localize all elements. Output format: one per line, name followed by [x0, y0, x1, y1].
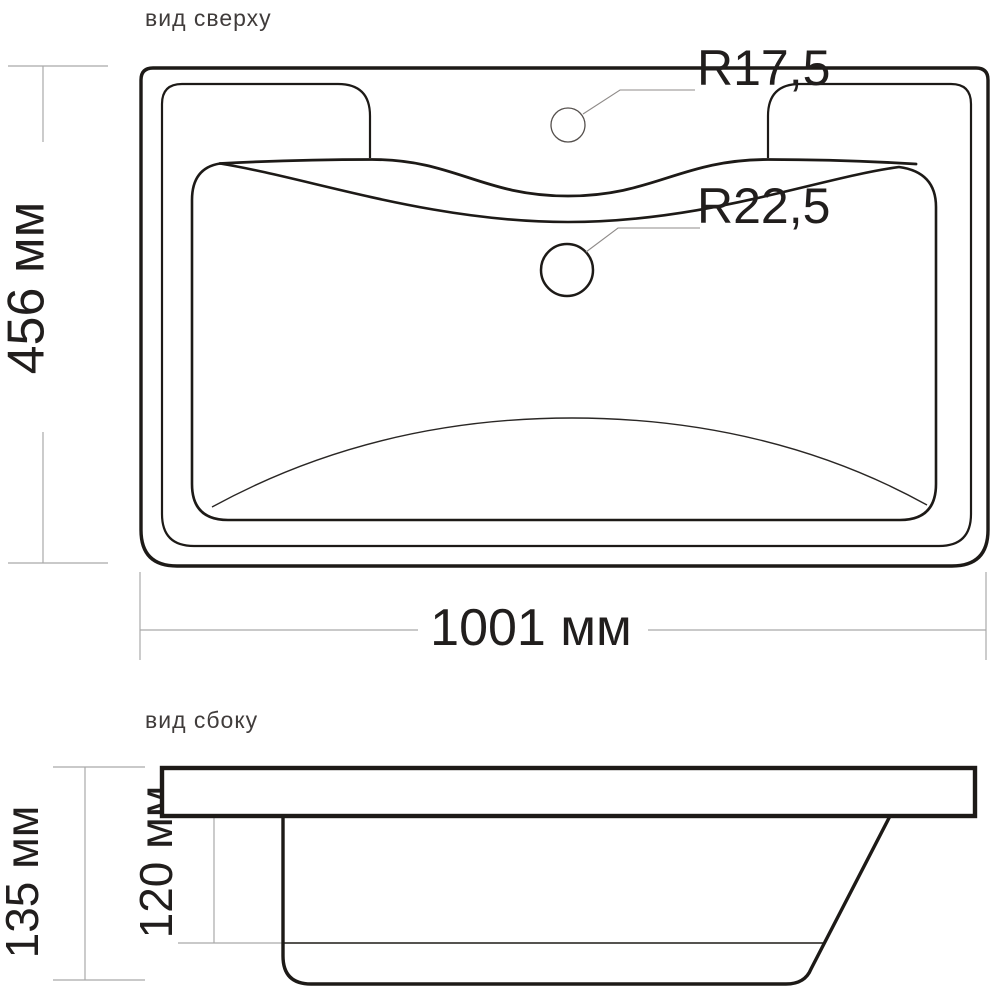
- drawing-canvas: вид сверху 456 мм: [0, 0, 1000, 997]
- drain-hole: [541, 244, 593, 296]
- depth-dimension-text: 456 мм: [0, 202, 56, 375]
- deck-contour: [162, 84, 971, 546]
- height-dimension-text: 135 мм: [0, 806, 48, 959]
- front-wall-arc: [212, 418, 927, 507]
- top-view: вид сверху 456 мм: [0, 5, 988, 660]
- annotation-faucet-radius: R17,5: [583, 40, 830, 114]
- faucet-hole: [551, 108, 585, 142]
- leader-line-r22: [586, 228, 700, 252]
- drain-radius-text: R22,5: [697, 178, 830, 234]
- side-view-label: вид сбоку: [145, 707, 258, 733]
- width-dimension-text: 1001 мм: [430, 599, 632, 657]
- side-view: вид сбоку 135 мм 120 мм: [0, 707, 975, 984]
- leader-line-r17: [583, 90, 695, 114]
- depth-dimension-456: 456 мм: [0, 66, 108, 563]
- countertop-slab: [162, 768, 975, 816]
- bowl-profile: [283, 816, 890, 984]
- width-dimension-1001: 1001 мм: [140, 572, 986, 660]
- height-dimension-135: 135 мм: [0, 767, 145, 980]
- faucet-radius-text: R17,5: [697, 40, 830, 96]
- technical-drawing-sink: вид сверху 456 мм: [0, 0, 1000, 997]
- outer-contour: [141, 68, 988, 566]
- top-view-label: вид сверху: [145, 5, 272, 31]
